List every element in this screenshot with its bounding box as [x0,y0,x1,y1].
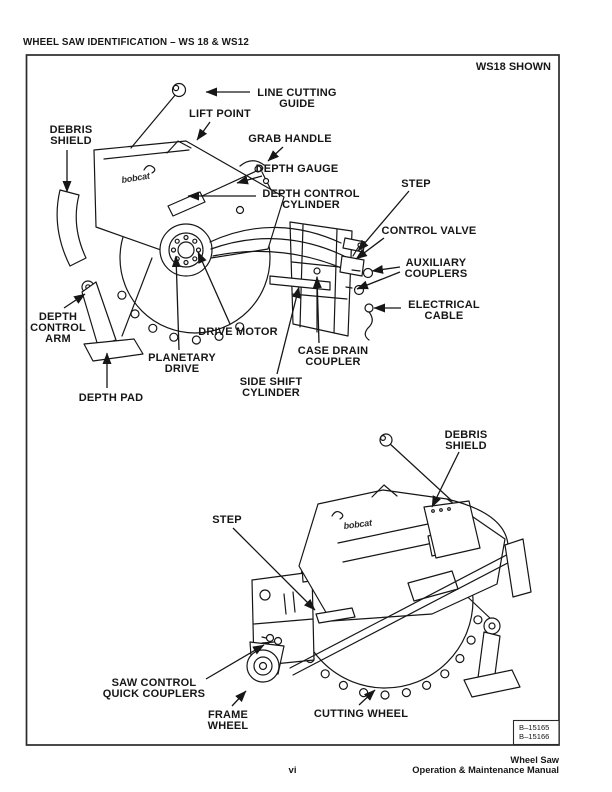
callout-leader-arrow [268,147,283,161]
callout-step: STEP [358,178,431,251]
figure-caption: WS18 SHOWN [476,61,551,73]
callout-label: DEPTH GAUGE [256,163,339,175]
debris-shield-part [57,190,86,266]
callout-label: DEPTHCONTROLARM [30,311,86,345]
callout-label: DEPTH PAD [79,392,144,404]
auxiliary-coupler-part [364,269,373,278]
callout-frame-wheel: FRAMEWHEEL [208,691,249,732]
callout-label: DRIVE MOTOR [198,326,278,338]
photo-reference-box: B–15165 B–15166 [514,721,560,745]
callout-label: LIFT POINT [189,108,251,120]
callout-electrical-cable: ELECTRICALCABLE [374,299,480,322]
callout-leader-arrow [64,294,85,308]
callout-auxiliary-couplers: AUXILIARYCOUPLERS [357,257,467,289]
callout-label: DEBRISSHIELD [445,429,488,452]
callout-label: ELECTRICALCABLE [408,299,480,322]
callout-label: STEP [401,178,431,190]
callout-grab-handle: GRAB HANDLE [248,133,331,161]
callout-label: DEBRISSHIELD [50,124,93,147]
callout-label: AUXILIARYCOUPLERS [405,257,468,280]
callout-saw-control-quick-couplers: SAW CONTROLQUICK COUPLERS [103,645,264,700]
photo-ref-2: B–15166 [519,732,549,741]
callout-label: SAW CONTROLQUICK COUPLERS [103,677,205,700]
callout-line-cutting-guide: LINE CUTTINGGUIDE [206,87,337,110]
callout-label: STEP [212,514,242,526]
callout-label: PLANETARYDRIVE [148,352,216,375]
frame-wheel-part [247,642,284,682]
footer-doc-title-line2: Operation & Maintenance Manual [412,766,559,776]
photo-ref-1: B–15165 [519,723,549,732]
callout-debris-shield: DEBRISSHIELD [50,124,93,192]
callout-label: CASE DRAINCOUPLER [298,345,368,368]
callout-depth-pad: DEPTH PAD [79,353,144,404]
callout-lift-point: LIFT POINT [189,108,251,140]
callout-label: CUTTING WHEEL [314,708,408,720]
identification-figure: WS18 SHOWN [0,0,612,792]
quick-coupler-part [275,638,282,645]
wheel-saw-illustration-front: bobcat [57,84,373,362]
callout-label: FRAMEWHEEL [208,709,249,732]
callout-depth-control-arm: DEPTHCONTROLARM [30,294,86,345]
callout-leader-arrow [232,691,246,706]
callout-control-valve: CONTROL VALVE [356,225,476,259]
callout-leader-arrow [372,267,400,271]
callout-debris-shield: DEBRISSHIELD [432,429,487,507]
wheel-saw-illustration-rear: bobcat [247,434,531,699]
control-valve-part [340,256,364,276]
planetary-drive-hub [160,224,212,276]
callout-leader-arrow [277,287,299,374]
callout-label: CONTROL VALVE [382,225,477,237]
callout-label: GRAB HANDLE [248,133,331,145]
line-cutting-guide-part [131,84,186,149]
callout-leader-arrow [197,122,210,140]
callout-label: LINE CUTTINGGUIDE [257,87,336,110]
footer-doc-title: Wheel Saw Operation & Maintenance Manual [412,756,559,775]
depth-pad-part [84,339,143,361]
callout-leader-arrow [358,191,409,251]
callout-label: SIDE SHIFTCYLINDER [240,376,303,399]
electrical-cable-part [365,304,373,312]
quick-coupler-part [267,635,274,642]
